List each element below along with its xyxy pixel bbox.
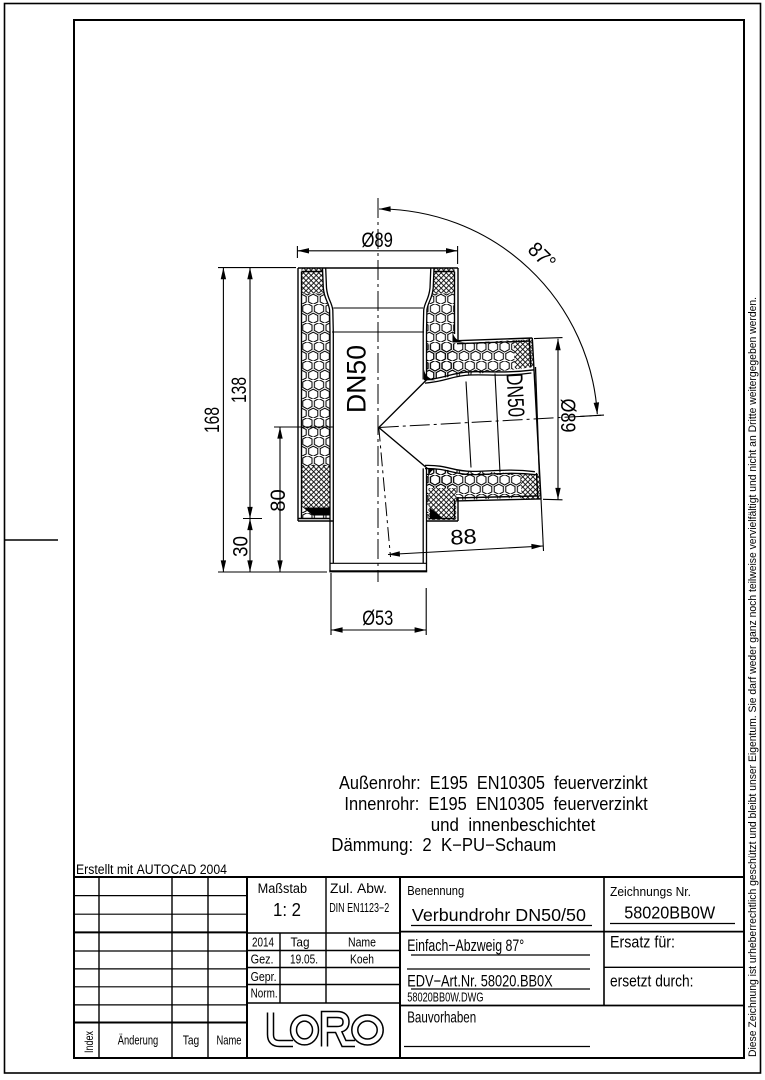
svg-text:ersetzt durch:: ersetzt durch:: [610, 973, 694, 991]
svg-text:DN50: DN50: [502, 372, 530, 417]
svg-text:Änderung: Änderung: [118, 1034, 159, 1048]
svg-text:Außenrohr: E195 EN10305 feu: Außenrohr: E195 EN10305 feuerverzinkt: [339, 773, 648, 793]
svg-text:DIN EN1123−2: DIN EN1123−2: [329, 901, 389, 915]
svg-text:Name: Name: [348, 936, 376, 950]
svg-text:19.05.: 19.05.: [290, 953, 318, 967]
svg-text:Zeichnungs Nr.: Zeichnungs Nr.: [610, 884, 691, 899]
svg-text:Zul. Abw.: Zul. Abw.: [330, 881, 387, 896]
svg-text:Name: Name: [217, 1034, 242, 1048]
svg-text:Benennung: Benennung: [407, 883, 464, 898]
svg-text:Tag: Tag: [183, 1034, 200, 1048]
svg-text:Norm.: Norm.: [251, 987, 278, 1001]
svg-text:Gepr.: Gepr.: [251, 970, 277, 984]
svg-text:EDV−Art.Nr. 58020.BB0X: EDV−Art.Nr. 58020.BB0X: [407, 973, 553, 991]
svg-text:Diese Zeichnung ist urheberrec: Diese Zeichnung ist urheberrechtlich ges…: [747, 297, 759, 1057]
svg-text:Einfach−Abzweig 87°: Einfach−Abzweig 87°: [407, 937, 524, 955]
svg-text:Dämmung: 2 K−PU−Schaum: Dämmung: 2 K−PU−Schaum: [331, 835, 556, 855]
svg-text:und innenbeschichtet: und innenbeschichtet: [431, 815, 596, 835]
svg-text:Tag: Tag: [291, 936, 310, 950]
svg-text:58020BB0W.DWG: 58020BB0W.DWG: [407, 991, 483, 1005]
svg-text:Maßstab: Maßstab: [258, 881, 308, 896]
svg-text:168: 168: [201, 407, 224, 433]
svg-text:Index: Index: [82, 1031, 96, 1053]
svg-text:2014: 2014: [252, 936, 274, 950]
svg-text:30: 30: [230, 536, 253, 557]
svg-text:Bauvorhaben: Bauvorhaben: [407, 1010, 476, 1027]
svg-text:Koeh: Koeh: [350, 953, 374, 967]
svg-text:DN50: DN50: [342, 345, 372, 413]
svg-text:Gez.: Gez.: [251, 953, 274, 967]
svg-text:58020BB0W: 58020BB0W: [624, 903, 716, 923]
svg-text:1: 2: 1: 2: [273, 900, 301, 920]
svg-text:Ø89: Ø89: [361, 229, 393, 252]
svg-text:Verbundrohr DN50/50: Verbundrohr DN50/50: [412, 905, 586, 925]
svg-text:Ø89: Ø89: [556, 399, 579, 433]
svg-text:80: 80: [267, 489, 290, 512]
svg-text:Erstellt mit AUTOCAD 2004: Erstellt mit AUTOCAD 2004: [76, 862, 227, 877]
svg-text:138: 138: [228, 377, 251, 403]
svg-text:Ersatz für:: Ersatz für:: [610, 934, 675, 952]
svg-text:Ø53: Ø53: [362, 607, 393, 630]
svg-text:Innenrohr: E195 EN10305 feu: Innenrohr: E195 EN10305 feuerverzinkt: [344, 794, 647, 814]
svg-text:88: 88: [450, 525, 478, 549]
